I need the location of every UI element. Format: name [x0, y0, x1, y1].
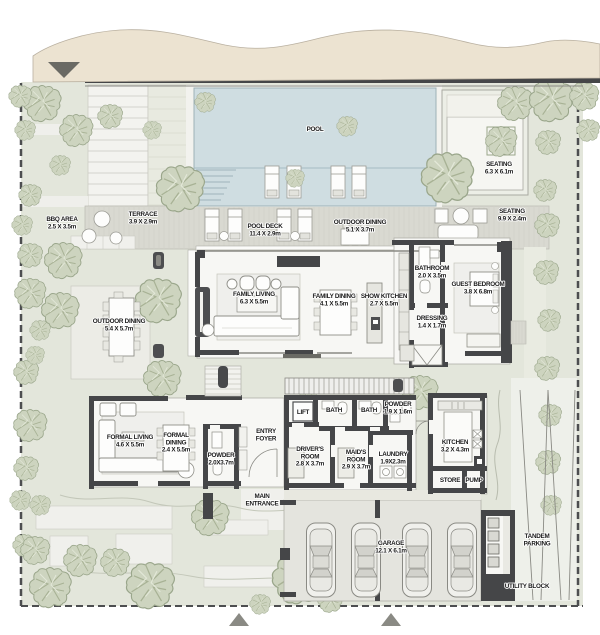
svg-text:BATHROOM2.0 X 3.5m: BATHROOM2.0 X 3.5m [415, 265, 450, 279]
svg-text:LAUNDRY1.9X2.3m: LAUNDRY1.9X2.3m [379, 451, 409, 465]
svg-text:POWDER1.9 X 1.6m: POWDER1.9 X 1.6m [384, 401, 413, 415]
svg-text:PUMP: PUMP [465, 477, 482, 484]
svg-text:BATH: BATH [361, 407, 378, 414]
svg-text:DRESSING1.4 X 1.7m: DRESSING1.4 X 1.7m [417, 315, 448, 329]
svg-text:BBQ AREA2.5 X 3.5m: BBQ AREA2.5 X 3.5m [46, 216, 78, 230]
svg-text:LIFT: LIFT [297, 409, 310, 416]
svg-text:SEATING6.3 X 6.1m: SEATING6.3 X 6.1m [485, 161, 514, 175]
svg-text:KITCHEN3.2 X 4.3m: KITCHEN3.2 X 4.3m [441, 439, 470, 453]
svg-text:TANDEMPARKING: TANDEMPARKING [524, 533, 551, 547]
svg-text:STORE: STORE [440, 477, 460, 484]
svg-text:GARAGE12.1 X 6.1m: GARAGE12.1 X 6.1m [375, 540, 407, 554]
svg-text:UTILITY BLOCK: UTILITY BLOCK [505, 583, 550, 590]
svg-text:ENTRYFOYER: ENTRYFOYER [256, 428, 277, 442]
svg-text:POOL DECK11.4 X 2.9m: POOL DECK11.4 X 2.9m [247, 223, 283, 237]
svg-text:TERRACE3.9 X 2.9m: TERRACE3.9 X 2.9m [129, 211, 158, 225]
svg-text:SEATING9.9 X 2.4m: SEATING9.9 X 2.4m [498, 208, 527, 222]
svg-text:POOL: POOL [307, 126, 324, 133]
svg-text:BATH: BATH [326, 407, 343, 414]
svg-text:POWDER2.0X3.7m: POWDER2.0X3.7m [208, 452, 236, 466]
